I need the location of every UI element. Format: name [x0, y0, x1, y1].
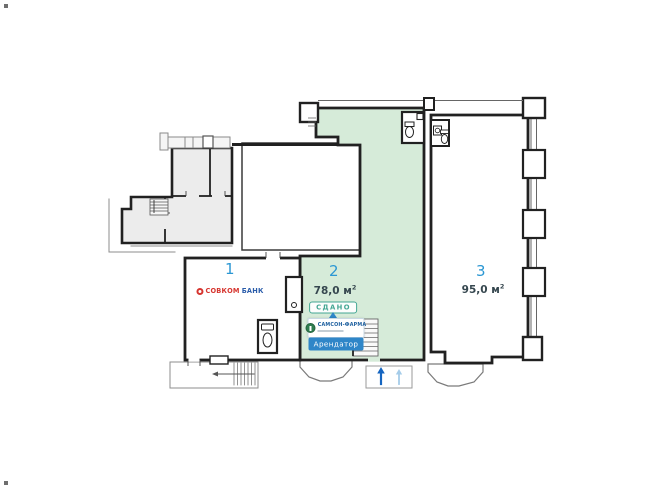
entrance-bay [300, 358, 352, 381]
unit3-area-value: 95,0 м [462, 284, 500, 296]
balcony [160, 133, 230, 150]
entrance-marker-box [366, 366, 412, 388]
sovcombank-logo-text: СОВКОМ [205, 287, 239, 295]
sovcombank-logo-icon [196, 288, 203, 295]
tenant-card[interactable]: САМСОН-ФАРМА [308, 318, 365, 338]
unit3-number: 3 [476, 262, 486, 280]
tenant-subtext-line [318, 330, 344, 332]
unit2-wc-room [402, 112, 424, 143]
tenant-name: САМСОН-ФАРМА [318, 324, 366, 329]
unit3-outline[interactable] [431, 115, 528, 363]
unit1-wc-room [258, 320, 277, 353]
toilet-icon [405, 122, 414, 138]
unit1-shaft-room [286, 277, 302, 312]
corner-artifact [4, 4, 8, 8]
unit3-wc-room [431, 120, 449, 146]
floor-plan: 1 СОВКОМБАНК 2 78,0 м2 СДАНО САМСОН-ФАРМ… [0, 0, 653, 489]
unit3-area-sup: 2 [500, 282, 505, 290]
sovcombank-logo: СОВКОМБАНК [196, 287, 263, 295]
unit1-area[interactable] [185, 252, 302, 366]
entrance-bay [428, 364, 483, 386]
stairs-icon [150, 199, 168, 215]
facade-pilaster [424, 98, 434, 110]
unit3-area-label: 95,0 м2 [462, 282, 505, 296]
unit1-step [210, 356, 228, 364]
neighbor-room [232, 143, 366, 250]
sovcombank-logo-text: БАНК [242, 287, 264, 295]
facade-pilaster [300, 103, 318, 122]
samson-pharma-text: САМСОН-ФАРМА [318, 324, 366, 331]
unit1-outline[interactable] [185, 258, 300, 360]
unit3-area[interactable] [431, 98, 545, 363]
corner-artifact [4, 481, 8, 485]
toilet-icon [441, 130, 449, 144]
unit1-number: 1 [225, 260, 235, 278]
unit2-number: 2 [329, 262, 339, 280]
tenant-button[interactable]: Арендатор [309, 338, 364, 351]
unit2-area-sup: 2 [352, 283, 357, 291]
samson-pharma-logo-icon [306, 323, 316, 333]
unit2-status: СДАНО [309, 295, 357, 314]
gray-block [122, 133, 232, 243]
floor-plan-drawing [0, 0, 653, 489]
